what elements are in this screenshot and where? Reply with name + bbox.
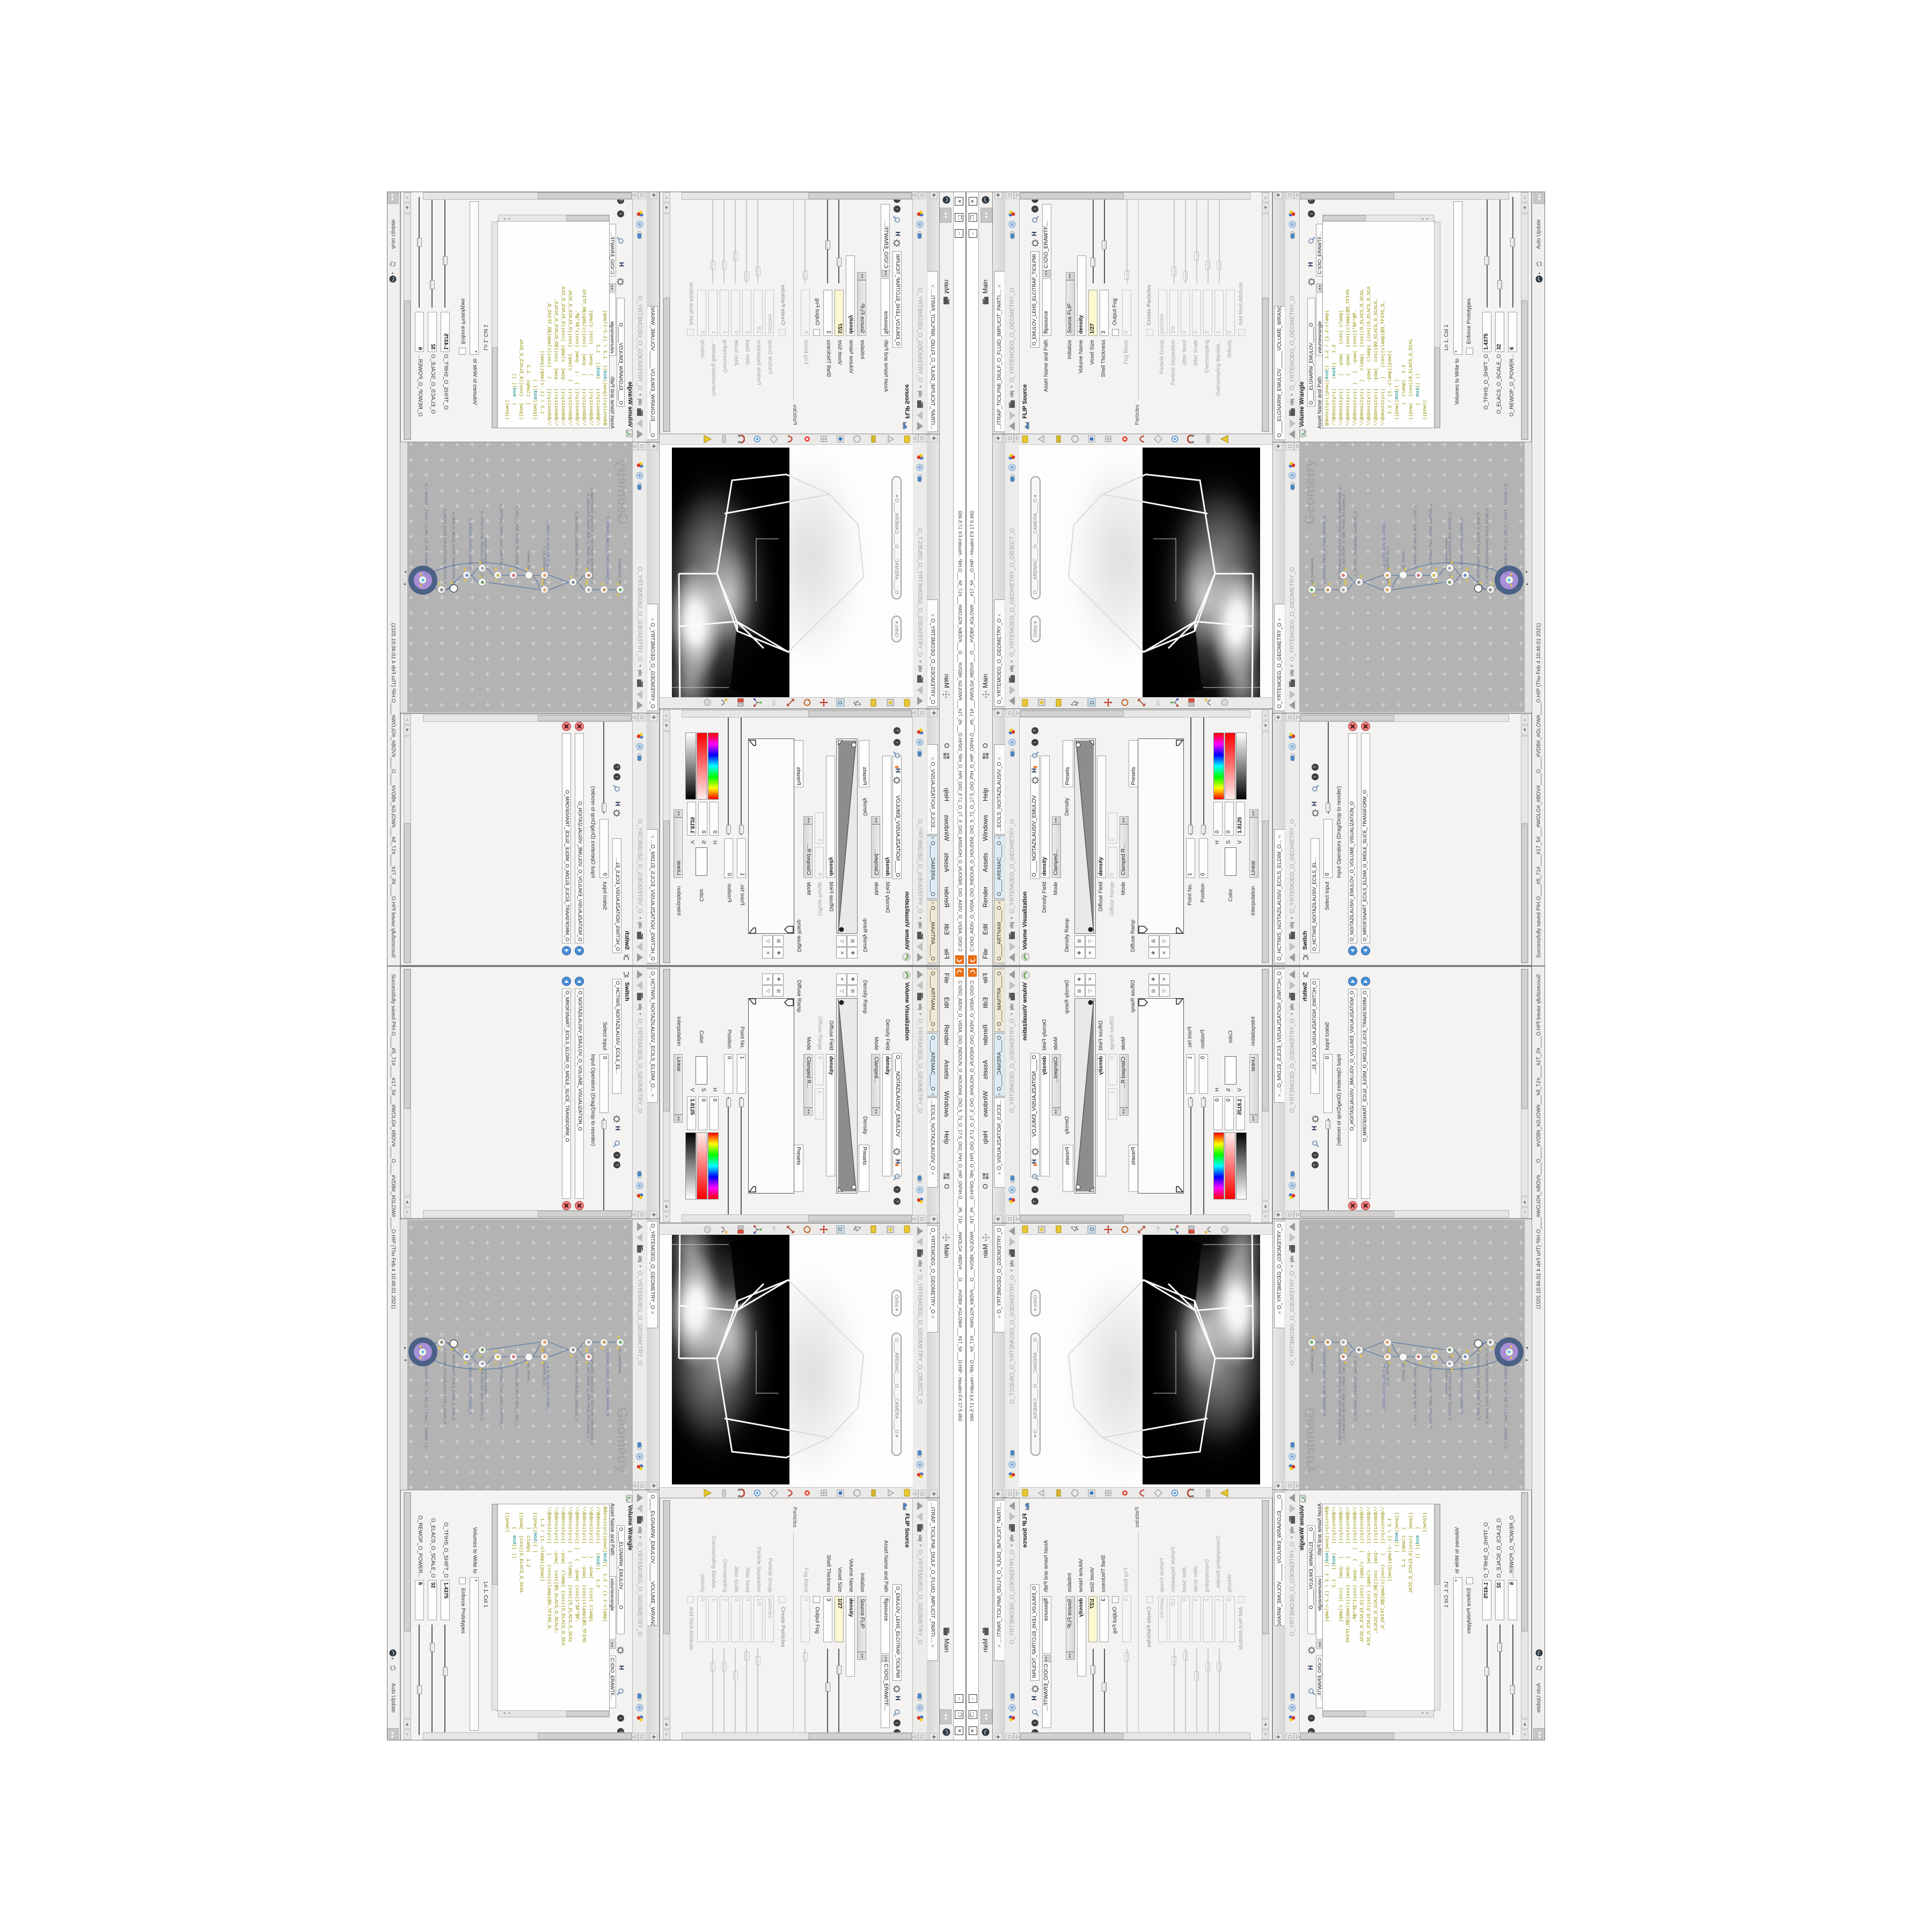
svg-text:D: D xyxy=(837,701,843,705)
svg-text:D: D xyxy=(1089,701,1095,705)
svg-text:D: D xyxy=(837,1227,843,1231)
svg-text:D: D xyxy=(1089,1227,1095,1231)
